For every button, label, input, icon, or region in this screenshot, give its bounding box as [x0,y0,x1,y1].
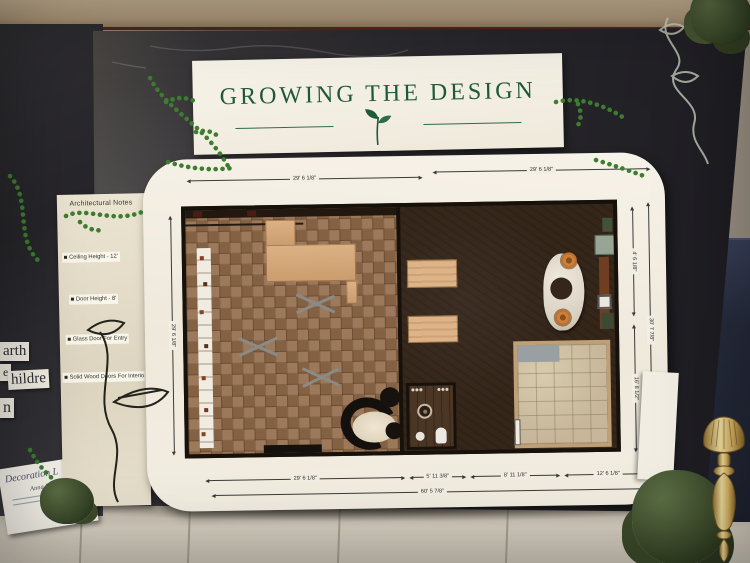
title-card: GROWING THE DESIGN [192,53,564,155]
bathroom [406,382,457,450]
appliance [597,295,611,309]
x-display-table [237,335,279,360]
dimension-label: 16' 8 1/2" [632,374,640,403]
dimension-bottom-3: 8' 11 1/8" [470,472,560,480]
display-counter [266,244,357,282]
wall-cabinet [602,218,612,232]
sprout-icon [361,105,396,146]
wall-fixture [193,211,202,217]
wall-cabinet [602,313,614,329]
toilet [436,427,447,443]
dimension-label: 5' 11 3/8" [423,472,452,480]
chalk-text-fragment: n [0,398,14,418]
sink [416,432,425,441]
bullet-icon [65,376,68,379]
dimension-label: 4' 6 1/8" [630,248,638,274]
dimension-label: 12' 6 1/8" [594,470,623,478]
dimension-label: 30' 7 7/8" [647,315,655,344]
title-divider-left [235,126,333,129]
sink [417,404,432,419]
notes-heading: Architectural Notes [61,199,141,208]
floor-plan [181,200,621,459]
architectural-notes-panel: Architectural Notes Ceiling Height - 12'… [57,193,152,507]
note-text: Ceiling Height - 12' [69,254,118,261]
bathroom-fixture [411,388,423,392]
bathroom-fixture [437,387,449,391]
chalk-text-fragment: hildre [8,369,50,390]
wall-fixture [247,210,256,216]
storefront-bench [264,444,322,453]
lounge-table [407,259,457,288]
dimension-bottom-1: 29' 6 1/8" [205,474,405,484]
display-counter [346,281,357,304]
note-text: Door Height - 8' [76,296,117,303]
presentation-board-photo: arth e hildre n Decoration L Anna Rainey… [0,0,750,563]
dimension-bottom-total: 60' 5 7/8" [211,485,653,499]
note-text: Solid Wood Doors For Interior [70,373,145,381]
dimension-label: 60' 5 7/8" [418,487,447,495]
note-text: Glass Door For Entry [73,336,128,343]
dimension-label: 8' 11 1/8" [501,471,530,479]
stone-floor-room [513,340,612,449]
x-display-table [301,365,341,390]
door [514,419,520,445]
display-counter [265,220,295,246]
note-item: Ceiling Height - 12' [62,252,120,263]
lounge-table [408,315,458,343]
dimension-label: 29' 6 1/8" [169,321,177,350]
bullet-icon [71,298,74,301]
dimension-top-right: 29' 6 1/8" [432,165,650,175]
chalk-text-fragment: arth [0,342,29,361]
moss-decoration [40,478,94,524]
floor-plan-poster: 29' 6 1/8" 29' 6 1/8" 29' 6 1/8" 4' 6 1/… [142,152,669,512]
background-card [637,371,679,481]
bullet-icon [68,338,71,341]
floor-mat [517,345,559,363]
wood-shelf-edge [0,0,750,30]
note-item: Door Height - 8' [69,294,119,305]
dimension-right-upper: 4' 6 1/8" [629,206,638,316]
title-divider-right [423,122,521,125]
dimension-bottom-2: 5' 11 3/8" [409,473,466,481]
dimension-top-left: 29' 6 1/8" [187,174,423,185]
x-display-table [294,292,336,317]
dimension-label: 29' 6 1/8" [290,174,319,182]
dimension-label: 29' 6 1/8" [291,474,320,482]
gold-furniture-leg [698,415,750,563]
wall-cabinet [595,235,617,255]
note-item: Solid Wood Doors For Interior [62,371,144,383]
dimension-left-side: 29' 6 1/8" [167,216,178,456]
bullet-icon [64,256,67,259]
note-item: Glass Door For Entry [66,333,130,344]
dimension-label: 29' 6 1/8" [527,166,556,174]
